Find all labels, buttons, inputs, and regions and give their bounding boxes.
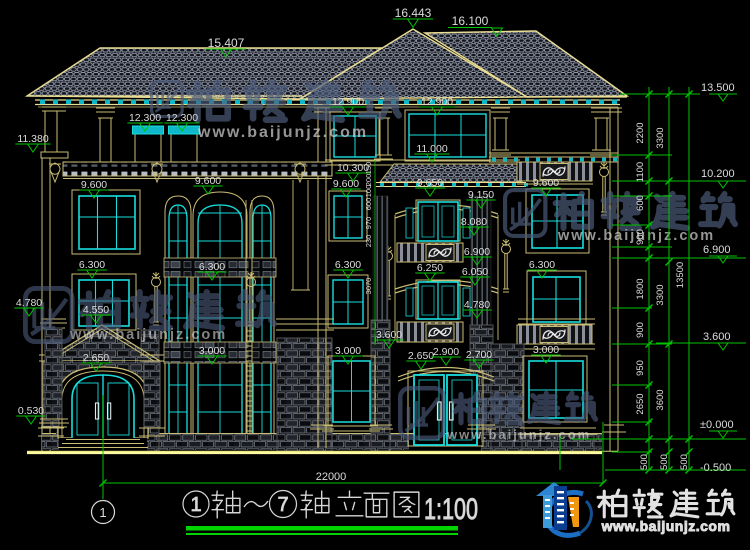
svg-text:3.600: 3.600: [703, 331, 731, 343]
svg-text:12.900: 12.900: [332, 96, 364, 108]
svg-text:16.443: 16.443: [395, 6, 432, 20]
svg-text:-0.500: -0.500: [700, 462, 731, 474]
svg-text:500: 500: [639, 454, 650, 470]
svg-text:11.000: 11.000: [416, 143, 447, 155]
svg-text:4.780: 4.780: [16, 297, 42, 309]
svg-text:6.300: 6.300: [79, 259, 105, 271]
svg-text:3.000: 3.000: [533, 344, 559, 356]
svg-text:3300: 3300: [655, 127, 666, 148]
svg-text:±0.000: ±0.000: [700, 419, 734, 431]
svg-text:1: 1: [99, 505, 106, 520]
svg-text:900: 900: [635, 322, 646, 338]
svg-text:200: 200: [364, 174, 373, 187]
svg-text:0.530: 0.530: [18, 405, 44, 417]
svg-text:1: 1: [190, 494, 201, 516]
svg-text:3600: 3600: [655, 389, 666, 410]
svg-text:22000: 22000: [316, 471, 347, 483]
svg-text:10.200: 10.200: [701, 168, 735, 180]
svg-text:12.300: 12.300: [129, 112, 161, 124]
svg-text:13500: 13500: [675, 262, 686, 288]
svg-text:970: 970: [364, 217, 373, 230]
svg-text:9.650: 9.650: [417, 177, 443, 189]
svg-text:1800: 1800: [635, 278, 646, 299]
svg-text:6.300: 6.300: [529, 259, 555, 271]
svg-text:www.baijunjz.com: www.baijunjz.com: [197, 124, 368, 141]
svg-text:www.baijunjz.com: www.baijunjz.com: [69, 327, 227, 343]
svg-text:4.780: 4.780: [464, 299, 490, 311]
svg-text:600: 600: [364, 198, 373, 211]
svg-text:950: 950: [635, 360, 646, 376]
svg-text:1100: 1100: [635, 162, 646, 182]
svg-text:6.050: 6.050: [462, 266, 488, 278]
svg-text:www.baijunjz.com: www.baijunjz.com: [601, 518, 731, 534]
svg-text:900: 900: [635, 229, 646, 245]
svg-text:150: 150: [364, 162, 373, 175]
svg-text:2.650: 2.650: [408, 350, 434, 362]
svg-text:600: 600: [635, 195, 646, 211]
svg-text:2.700: 2.700: [466, 349, 492, 361]
svg-text:3.000: 3.000: [199, 345, 225, 357]
svg-text:500: 500: [679, 454, 690, 470]
svg-text:6.900: 6.900: [464, 246, 490, 258]
svg-text:9.600: 9.600: [81, 179, 107, 191]
svg-text:8.080: 8.080: [461, 216, 487, 228]
svg-text:2.900: 2.900: [433, 346, 459, 358]
svg-text:7: 7: [277, 494, 288, 516]
svg-text:3070: 3070: [364, 278, 373, 295]
svg-text:100: 100: [364, 185, 373, 198]
svg-text:9.600: 9.600: [333, 178, 359, 190]
svg-text:6.250: 6.250: [417, 262, 443, 274]
svg-text:12.300: 12.300: [166, 112, 198, 124]
svg-text:13.500: 13.500: [701, 82, 735, 94]
svg-text:500: 500: [659, 454, 670, 470]
svg-text:15.407: 15.407: [208, 36, 245, 50]
svg-text:2.650: 2.650: [83, 352, 109, 364]
svg-text:6.300: 6.300: [335, 259, 361, 271]
svg-text:3.600: 3.600: [376, 329, 402, 341]
svg-text:2650: 2650: [635, 393, 646, 414]
svg-text:12.900: 12.900: [421, 96, 453, 108]
svg-text:2200: 2200: [635, 122, 646, 143]
svg-text:9.150: 9.150: [468, 189, 494, 201]
svg-text:6.300: 6.300: [199, 261, 225, 273]
svg-text:9.600: 9.600: [195, 175, 221, 187]
svg-text:3300: 3300: [655, 284, 666, 305]
svg-text:11.380: 11.380: [17, 133, 48, 145]
svg-text:16.100: 16.100: [452, 14, 489, 28]
svg-text:3.000: 3.000: [335, 345, 361, 357]
svg-text:6.900: 6.900: [703, 244, 731, 256]
svg-text:4.550: 4.550: [83, 304, 109, 316]
svg-text:230: 230: [364, 235, 373, 248]
svg-text:1:100: 1:100: [424, 493, 478, 526]
svg-text:www.baijunjz.com: www.baijunjz.com: [446, 427, 591, 442]
svg-text:9.600: 9.600: [533, 177, 559, 189]
